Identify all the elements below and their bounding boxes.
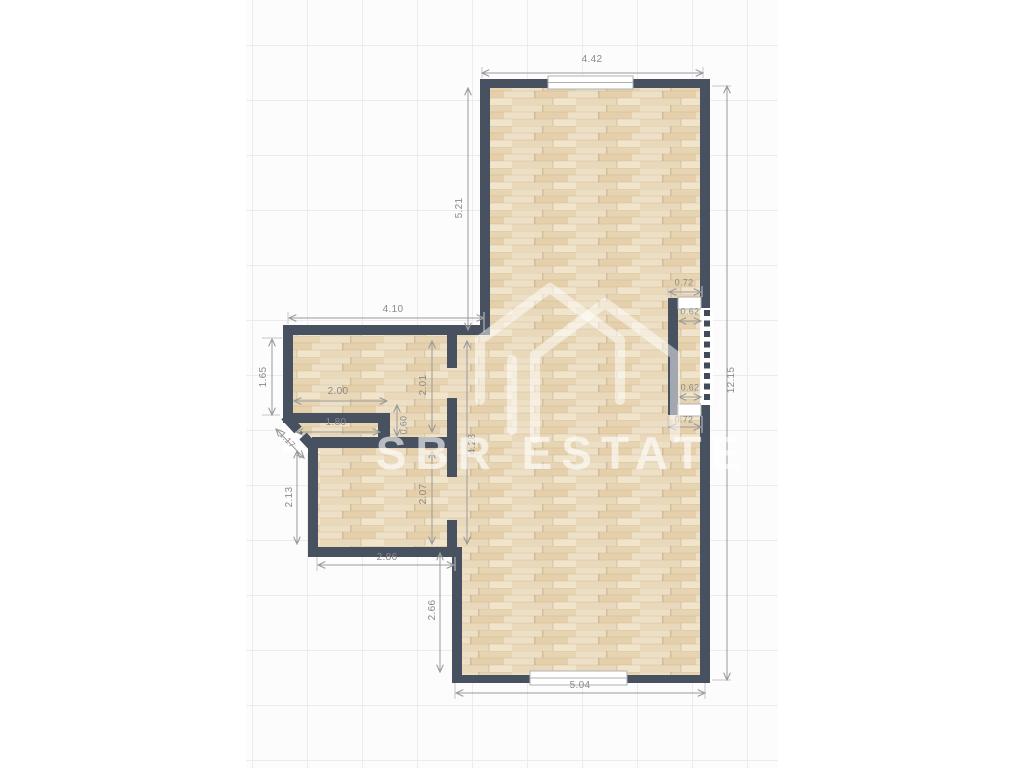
floorplan-canvas: 4.42 5.21 12.15 0.72 0.62 0.62 0.72 4.10… — [0, 0, 1024, 768]
watermark-brand-text: SBR ESTATE — [376, 426, 751, 480]
watermark-layer — [0, 0, 1024, 768]
watermark-house-icon — [480, 288, 675, 438]
